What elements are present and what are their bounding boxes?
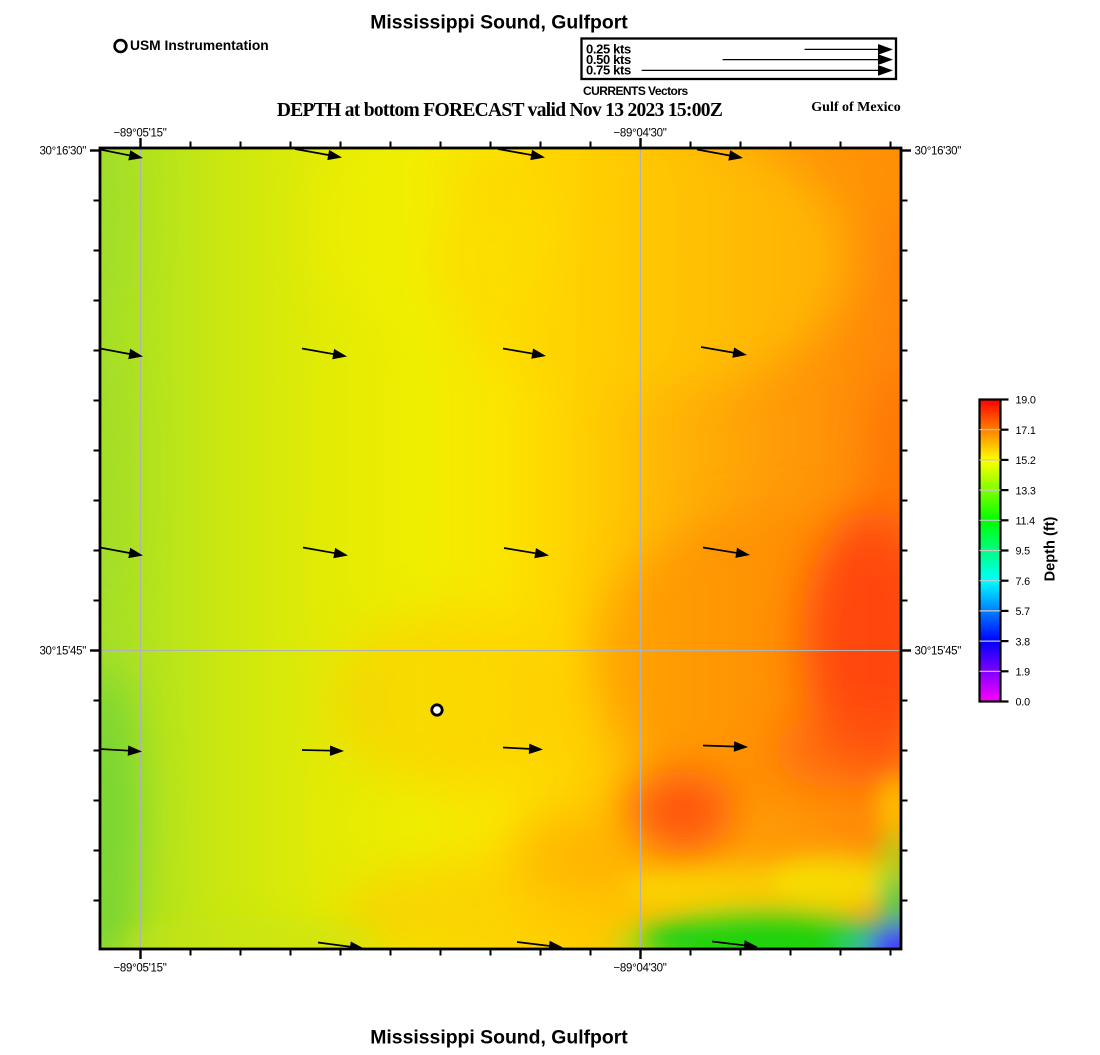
svg-text:30°16'30": 30°16'30" bbox=[39, 146, 86, 158]
svg-text:7.6: 7.6 bbox=[1016, 576, 1031, 588]
svg-text:9.5: 9.5 bbox=[1016, 546, 1031, 558]
svg-text:1.9: 1.9 bbox=[1016, 667, 1031, 679]
svg-text:−89°05'15": −89°05'15" bbox=[114, 128, 167, 140]
svg-text:−89°04'30": −89°04'30" bbox=[614, 963, 667, 975]
svg-text:−89°05'15": −89°05'15" bbox=[114, 963, 167, 975]
svg-text:30°15'45": 30°15'45" bbox=[915, 646, 962, 658]
svg-text:−89°04'30": −89°04'30" bbox=[614, 128, 667, 140]
svg-text:13.3: 13.3 bbox=[1016, 485, 1036, 497]
svg-text:11.4: 11.4 bbox=[1016, 516, 1036, 528]
svg-text:5.7: 5.7 bbox=[1016, 606, 1031, 618]
svg-text:CURRENTS Vectors: CURRENTS Vectors bbox=[583, 84, 688, 98]
svg-text:DEPTH at bottom FORECAST valid: DEPTH at bottom FORECAST valid Nov 13 20… bbox=[277, 100, 723, 121]
svg-text:0.75 kts: 0.75 kts bbox=[586, 63, 631, 78]
svg-text:19.0: 19.0 bbox=[1016, 395, 1036, 407]
svg-text:Gulf of Mexico: Gulf of Mexico bbox=[811, 100, 900, 115]
svg-text:3.8: 3.8 bbox=[1016, 636, 1031, 648]
svg-text:15.2: 15.2 bbox=[1016, 455, 1036, 467]
svg-text:Depth (ft): Depth (ft) bbox=[1043, 516, 1059, 581]
svg-text:0.0: 0.0 bbox=[1016, 697, 1031, 709]
svg-text:Mississippi Sound, Gulfport: Mississippi Sound, Gulfport bbox=[370, 12, 628, 34]
svg-text:17.1: 17.1 bbox=[1016, 425, 1036, 437]
svg-text:30°16'30": 30°16'30" bbox=[915, 146, 962, 158]
svg-text:30°15'45": 30°15'45" bbox=[39, 646, 86, 658]
svg-text:USM Instrumentation: USM Instrumentation bbox=[130, 38, 269, 53]
svg-text:Mississippi Sound, Gulfport: Mississippi Sound, Gulfport bbox=[370, 1027, 628, 1049]
